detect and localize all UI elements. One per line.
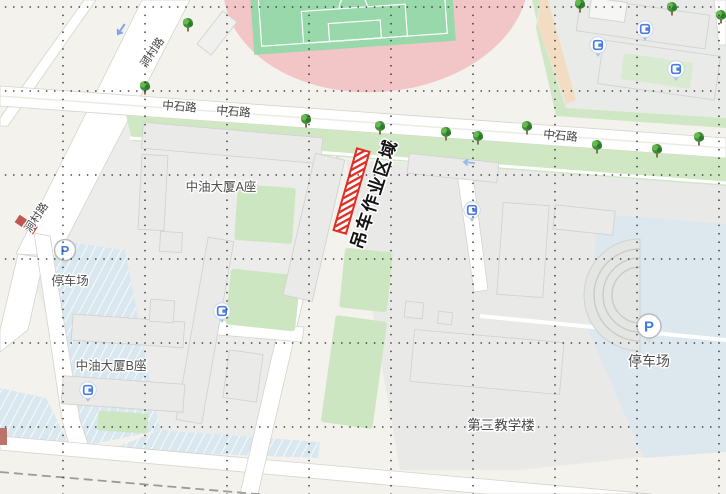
building-block xyxy=(437,311,452,324)
parking-right-label: 停车场 xyxy=(628,353,670,369)
campus-map[interactable]: 吊车作业区域 中石路 中石路 中石路 涧村路 涧村路 中油大厦A座 中油大厦B座… xyxy=(0,0,726,494)
building-block xyxy=(223,350,263,402)
parking-symbol: P xyxy=(61,243,70,258)
red-building-sliver xyxy=(0,428,7,445)
map-canvas[interactable]: 吊车作业区域 中石路 中石路 中石路 涧村路 涧村路 中油大厦A座 中油大厦B座… xyxy=(0,0,726,494)
teaching-building-label: 第三教学楼 xyxy=(467,417,535,433)
building-block xyxy=(159,231,182,252)
building-block xyxy=(497,203,549,298)
parking-left-label: 停车场 xyxy=(51,273,89,288)
parking-symbol: P xyxy=(644,319,654,336)
building-block xyxy=(149,299,174,323)
building-b-label: 中油大厦B座 xyxy=(76,358,147,373)
building-a-label: 中油大厦A座 xyxy=(186,179,257,194)
building-block xyxy=(404,301,424,319)
building-block xyxy=(138,154,168,230)
